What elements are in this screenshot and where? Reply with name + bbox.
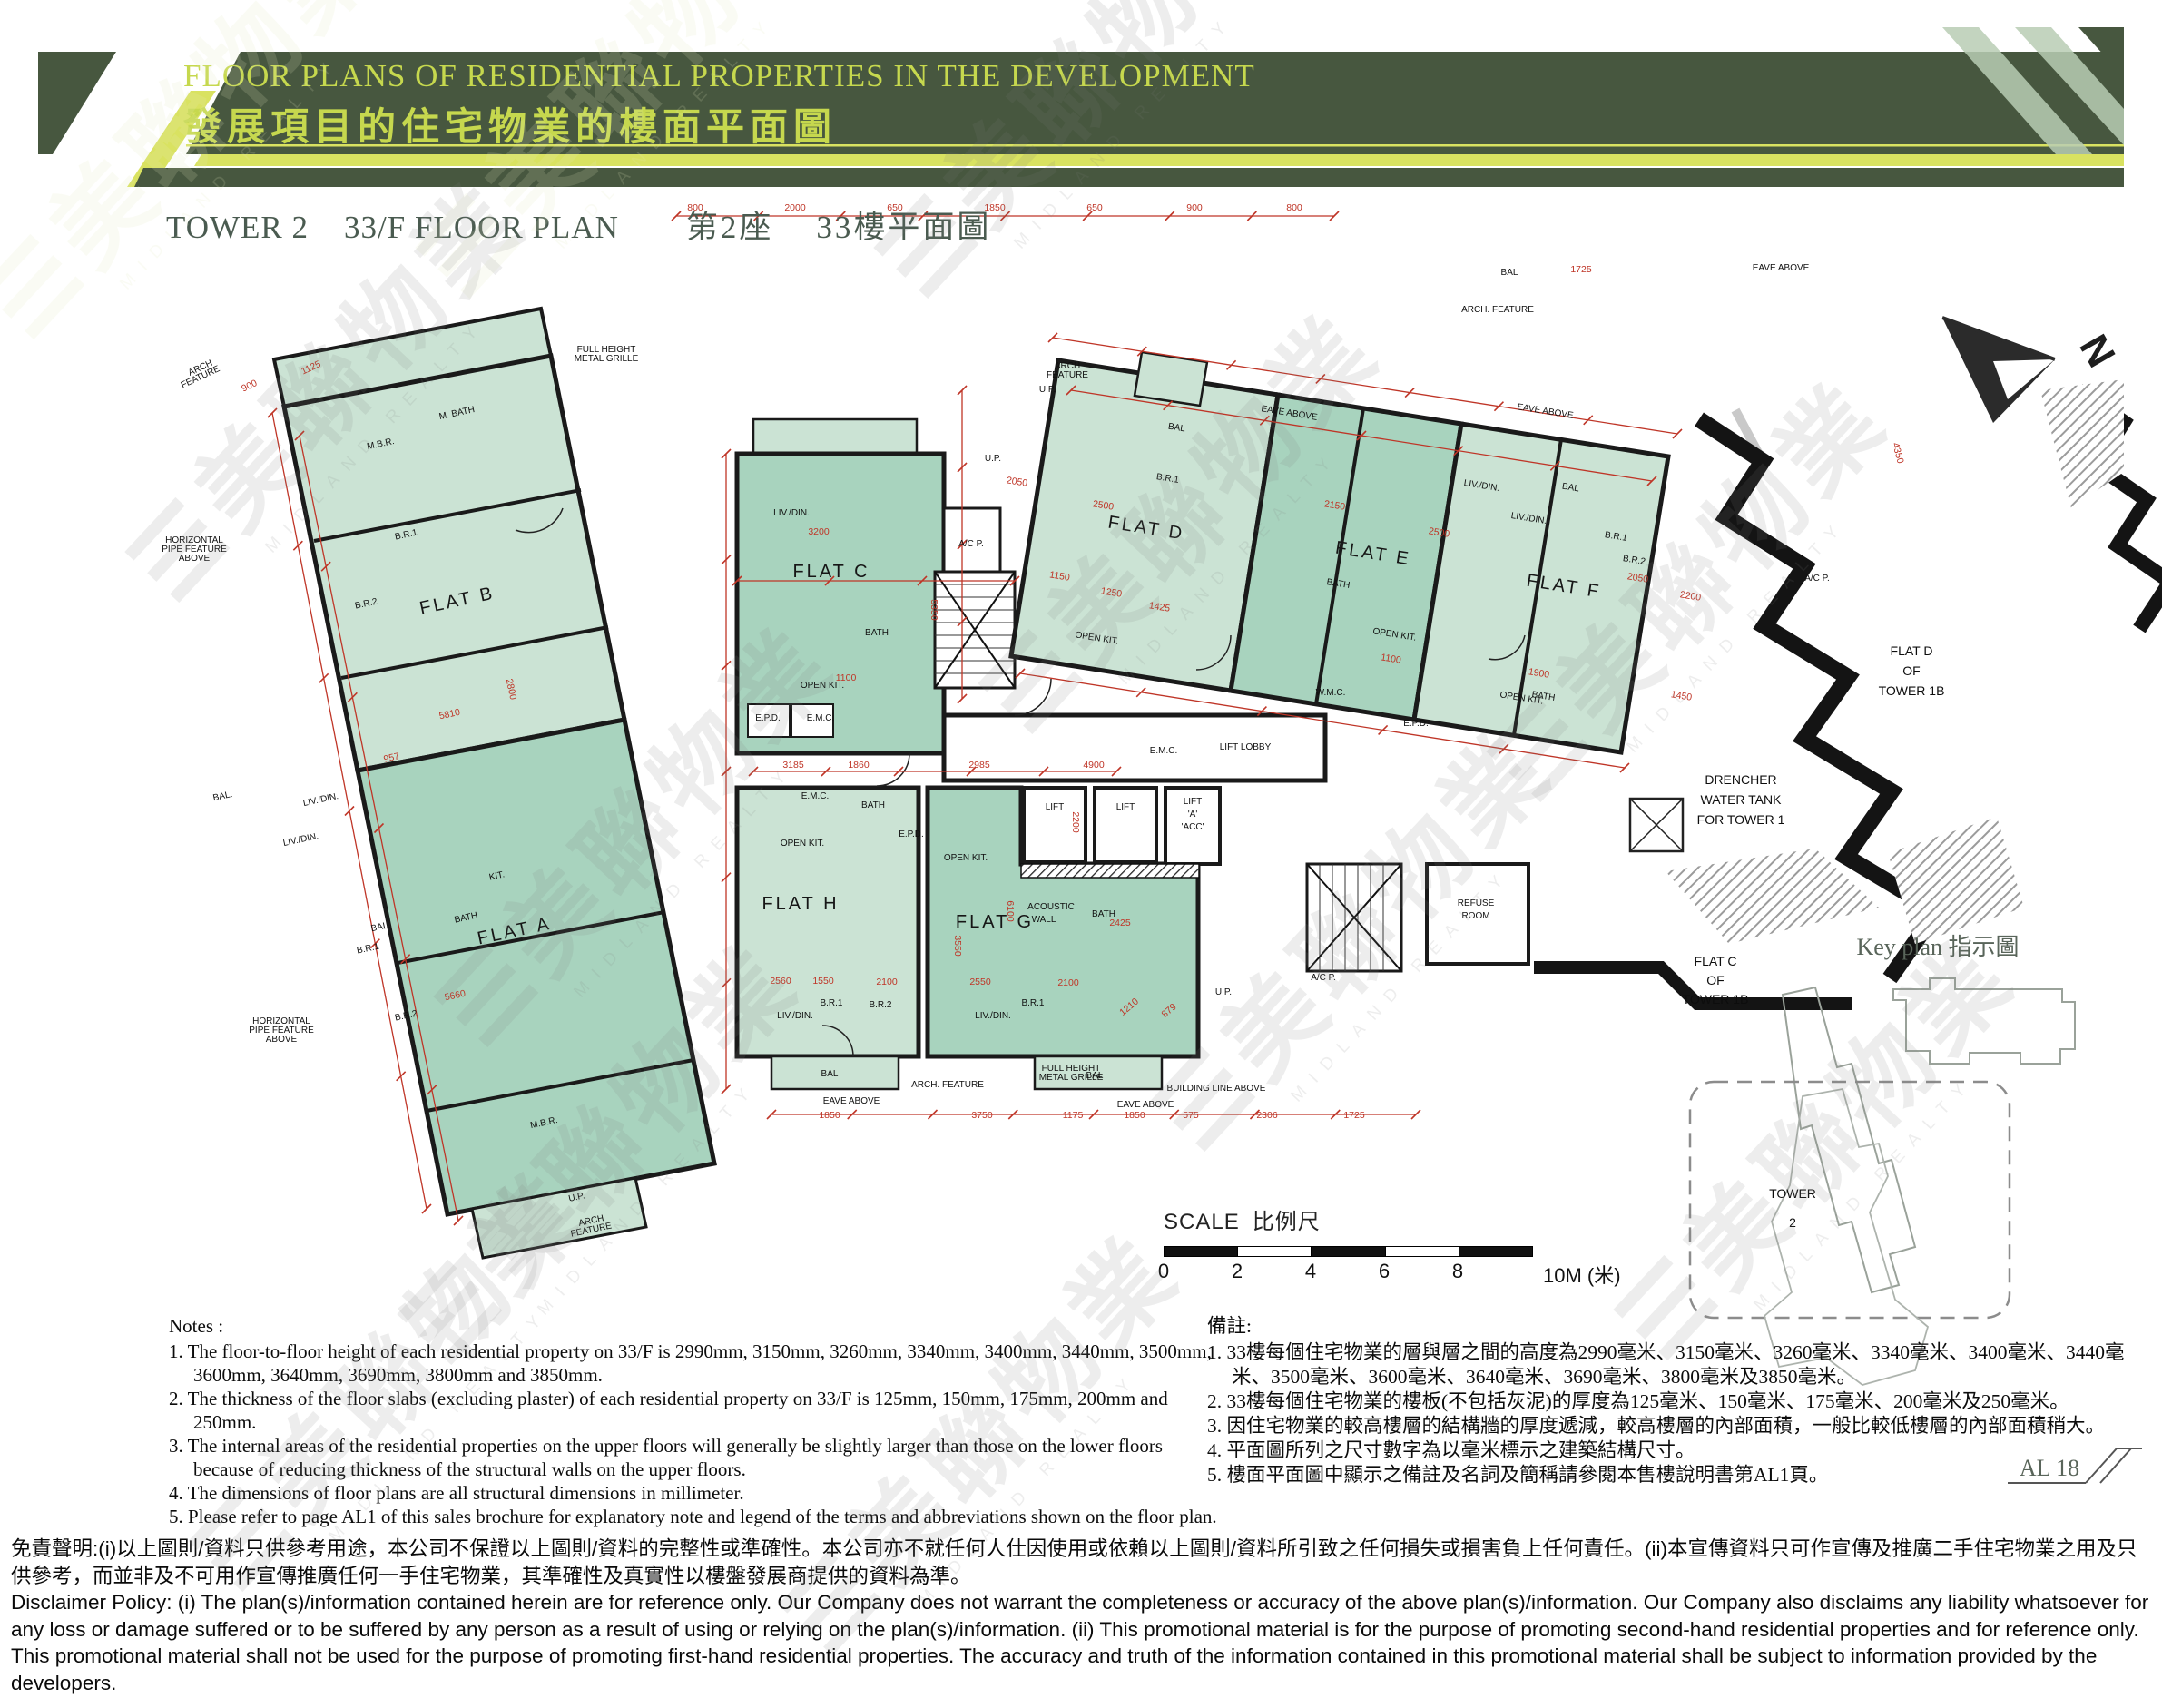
tower-boundary [1630,379,2162,978]
plan-label-lift-lobby: LIFT LOBBY [1220,742,1272,752]
plan-label-a: 'A' [1188,810,1198,820]
plan-label-1725: 1725 [1570,264,1592,275]
plan-label-flat-c: FLAT C [792,562,870,582]
dim-tick [454,1216,463,1225]
plan-label-1850: 1850 [819,1110,840,1121]
note-item: 1. 33樓每個住宅物業的層與層之間的高度為2990毫米、3150毫米、3260… [1207,1340,2153,1389]
note-item: 5. 樓面平面圖中顯示之備註及名詞及簡稱請參閱本售樓說明書第AL1頁。 [1207,1463,2153,1487]
plan-label-3185: 3185 [782,760,804,771]
scale-track [1164,1246,1533,1257]
plan-subtitle: TOWER 2 33/F FLOOR PLAN第2座 33樓平面圖 [166,201,991,248]
page-title-zh: 發展項目的住宅物業的樓面平面圖 [183,96,837,152]
plan-label-2100: 2100 [1057,977,1079,988]
plan-label-900: 900 [1186,202,1203,213]
plan-label-a-c-p: A/C P. [1311,973,1336,983]
plan-label-3550: 3550 [952,935,963,957]
plan-label-eave-above: EAVE ABOVE [1517,402,1575,421]
plan-label-2: 2 [1789,1215,1796,1230]
notes-en-heading: Notes : [169,1314,1218,1338]
scale-tick: 0 [1158,1260,1169,1283]
plan-label-metal-grille: METAL GRILLE [575,354,639,364]
scale-seg [1312,1247,1384,1256]
plan-label-liv-din: LIV./DIN. [282,831,319,849]
plan-label-3200: 3200 [808,526,830,537]
plan-label-800: 800 [1286,202,1302,213]
notes-english: Notes : 1. The floor-to-floor height of … [169,1314,1218,1528]
plan-label-u-p: U.P. [1215,987,1232,997]
plan-label-drencher: DRENCHER [1705,772,1776,787]
notes-zh-heading: 備註: [1207,1314,2153,1339]
plan-label-acc: 'ACC' [1182,822,1204,832]
disclaimer: 免責聲明:(i)以上圖則/資料只供參考用途，本公司不保證以上圖則/資料的完整性或… [11,1536,2153,1696]
plan-label-2100: 2100 [876,977,898,987]
plan-label-key-plan: Key plan 指示圖 [1856,934,2019,960]
plan-label-metal-grille: METAL GRILLE [1039,1073,1104,1083]
note-item: 5. Please refer to page AL1 of this sale… [169,1505,1218,1528]
brochure-page: FLOOR PLANS OF RESIDENTIAL PROPERTIES IN… [0,0,2162,1708]
disclaimer-zh: 免責聲明:(i)以上圖則/資料只供參考用途，本公司不保證以上圖則/資料的完整性或… [11,1536,2153,1589]
plan-label-water-tank: WATER TANK [1701,792,1783,807]
plan-label-refuse: REFUSE [1458,898,1495,908]
plan-label-1450: 1450 [1670,689,1693,703]
scale-ticks: 10M (米) 02468 [1164,1260,1636,1285]
plan-label-liv-din: LIV./DIN. [302,791,339,809]
plan-label-bal: BAL. [212,790,234,803]
note-item: 2. The thickness of the floor slabs (exc… [169,1387,1218,1434]
plan-label-of: OF [1902,663,1920,678]
plan-label-flat-c: FLAT C [1695,954,1737,968]
plan-label-1550: 1550 [812,976,834,987]
plan-label-1725: 1725 [1343,1110,1365,1121]
plan-label-of: OF [1706,973,1724,987]
plan-label-lift: LIFT [1116,802,1135,812]
dim-tick [319,673,329,682]
scale-label: SCALE比例尺 [1164,1203,1636,1235]
note-item: 3. The internal areas of the residential… [169,1434,1218,1481]
plan-label-lift: LIFT [1184,797,1203,807]
scale-label-en: SCALE [1164,1210,1240,1234]
note-item: 2. 33樓每個住宅物業的樓板(不包括灰泥)的厚度為125毫米、150毫米、17… [1207,1389,2153,1414]
note-item: 4. 平面圖所列之尺寸數字為以毫米標示之建築結構尺寸。 [1207,1438,2153,1463]
plan-label-flat-g: FLAT G [956,912,1034,932]
plan-label-lift: LIFT [1046,802,1065,812]
plan-label-above: ABOVE [179,554,211,564]
plan-label-2985: 2985 [968,760,990,771]
plan-label-bath: BATH [861,800,885,810]
plan-label-room: ROOM [1461,911,1489,921]
plan-label-e-m-c: E.M.C. [801,791,830,801]
subtitle-en: TOWER 2 33/F FLOOR PLAN [166,210,619,245]
plan-label-5350: 5350 [929,599,939,621]
note-item: 4. The dimensions of floor plans are all… [169,1481,1218,1505]
plan-label-a-c-p: A/C P. [1804,574,1830,584]
plan-label-575: 575 [1183,1110,1199,1121]
plan-label-above: ABOVE [266,1035,298,1045]
notes-en-list: 1. The floor-to-floor height of each res… [169,1340,1218,1528]
plan-label-u-p: U.P. [1039,385,1056,395]
plan-label-2550: 2550 [969,977,991,987]
plan-label-tower-1b: TOWER 1B [1879,683,1945,698]
plan-label-wall: WALL [1032,915,1056,925]
plan-label-b-r-1: B.R.1 [820,998,842,1008]
scale-seg [1459,1247,1532,1256]
scale-seg [1237,1247,1312,1256]
plan-label-1860: 1860 [848,760,870,771]
plan-label-bal: BAL [1501,268,1518,278]
plan-label-eave-above: EAVE ABOVE [823,1096,880,1106]
plan-label-for-tower-1: FOR TOWER 1 [1697,812,1785,827]
plan-label-eave-above: EAVE ABOVE [1117,1100,1174,1110]
scale-seg [1165,1247,1237,1256]
note-item: 3. 因住宅物業的較高樓層的結構牆的厚度遞減，較高樓層的內部面積，一般比較低樓層… [1207,1414,2153,1438]
notes-zh-list: 1. 33樓每個住宅物業的層與層之間的高度為2990毫米、3150毫米、3260… [1207,1340,2153,1487]
plan-label-eave-above: EAVE ABOVE [1753,263,1810,273]
plan-label-tower-1b: TOWER 1B [1683,992,1749,1006]
plan-label-feature: FEATURE [1047,370,1088,380]
scale-label-zh: 比例尺 [1253,1210,1321,1234]
scale-tick: 8 [1452,1260,1463,1283]
scale-tick: 4 [1305,1260,1316,1283]
plan-label-liv-din: LIV./DIN. [773,508,810,518]
plan-label-e-p-d: E.P.D. [1403,719,1429,729]
dim-tick [268,408,277,417]
scale-bar: SCALE比例尺 10M (米) 02468 [1164,1203,1636,1285]
plan-label-arch-feature: ARCH. FEATURE [911,1080,984,1090]
plan-label-4350: 4350 [1890,441,1906,465]
dim-tick [397,1072,406,1081]
plan-label-open-kit: OPEN KIT. [781,839,824,849]
plan-label-a-c-p: A/C P. [958,539,984,549]
plan-label-2425: 2425 [1109,918,1131,928]
plan-label-b-r-2: B.R.2 [869,1000,891,1010]
subtitle-zh: 第2座 33樓平面圖 [686,210,992,245]
plan-label-e-p-d: E.P.D. [755,713,781,723]
plan-label-2200: 2200 [1679,589,1702,604]
plan-label-open-kit: OPEN KIT. [944,853,988,863]
note-item: 1. The floor-to-floor height of each res… [169,1340,1218,1387]
plan-label-e-p-d: E.P.D. [899,829,924,839]
plan-label-tower: TOWER [1769,1186,1816,1201]
dim-tick [293,541,302,550]
plan-label-e-m-c: E.M.C. [1150,746,1178,756]
plan-label-6100: 6100 [1005,900,1016,922]
page-title-en: FLOOR PLANS OF RESIDENTIAL PROPERTIES IN… [183,58,1255,94]
plan-label-building-line-above: BUILDING LINE ABOVE [1167,1084,1266,1094]
scale-seg [1385,1247,1459,1256]
plan-label-liv-din: LIV./DIN. [975,1011,1011,1021]
scale-tick: 2 [1232,1260,1243,1283]
plan-label-acoustic: ACOUSTIC [1027,902,1075,912]
plan-label-n: N [2070,328,2123,375]
plan-label-flat-d: FLAT D [1891,643,1933,658]
dim-tick [422,1204,431,1213]
plan-label-900: 900 [240,378,259,394]
plan-label-b-r-1: B.R.1 [1021,998,1044,1008]
plan-label-1850: 1850 [1124,1110,1145,1121]
plan-label-1175: 1175 [1063,1110,1084,1121]
plan-label-u-p: U.P. [985,454,1001,464]
plan-label-3750: 3750 [971,1110,993,1121]
plan-label-arch-feature: ARCH. FEATURE [1461,305,1534,315]
left-wing [274,309,714,1258]
plan-label-bath: BATH [865,628,889,638]
plan-label-2050: 2050 [1006,475,1028,489]
dim-tick [345,807,354,816]
scale-end-label: 10M (米) [1543,1260,1621,1289]
plan-label-2306: 2306 [1256,1110,1278,1121]
plan-label-650: 650 [1086,202,1103,213]
plan-label-2200: 2200 [1070,811,1081,833]
plan-label-e-m-c: E.M.C. [807,713,835,723]
plan-label-1100: 1100 [836,672,857,683]
plan-label-2560: 2560 [770,976,791,987]
plan-label-w-m-c: W.M.C. [1316,688,1346,698]
plan-label-bal: BAL [821,1069,839,1079]
plan-label-liv-din: LIV./DIN. [777,1011,813,1021]
plan-label-4900: 4900 [1083,760,1105,771]
disclaimer-en: Disclaimer Policy: (i) The plan(s)/infor… [11,1589,2153,1696]
north-arrow-icon [1942,318,2055,423]
scale-tick: 6 [1379,1260,1390,1283]
notes-chinese: 備註: 1. 33樓每個住宅物業的層與層之間的高度為2990毫米、3150毫米、… [1207,1314,2153,1487]
plan-label-flat-h: FLAT H [762,894,839,914]
